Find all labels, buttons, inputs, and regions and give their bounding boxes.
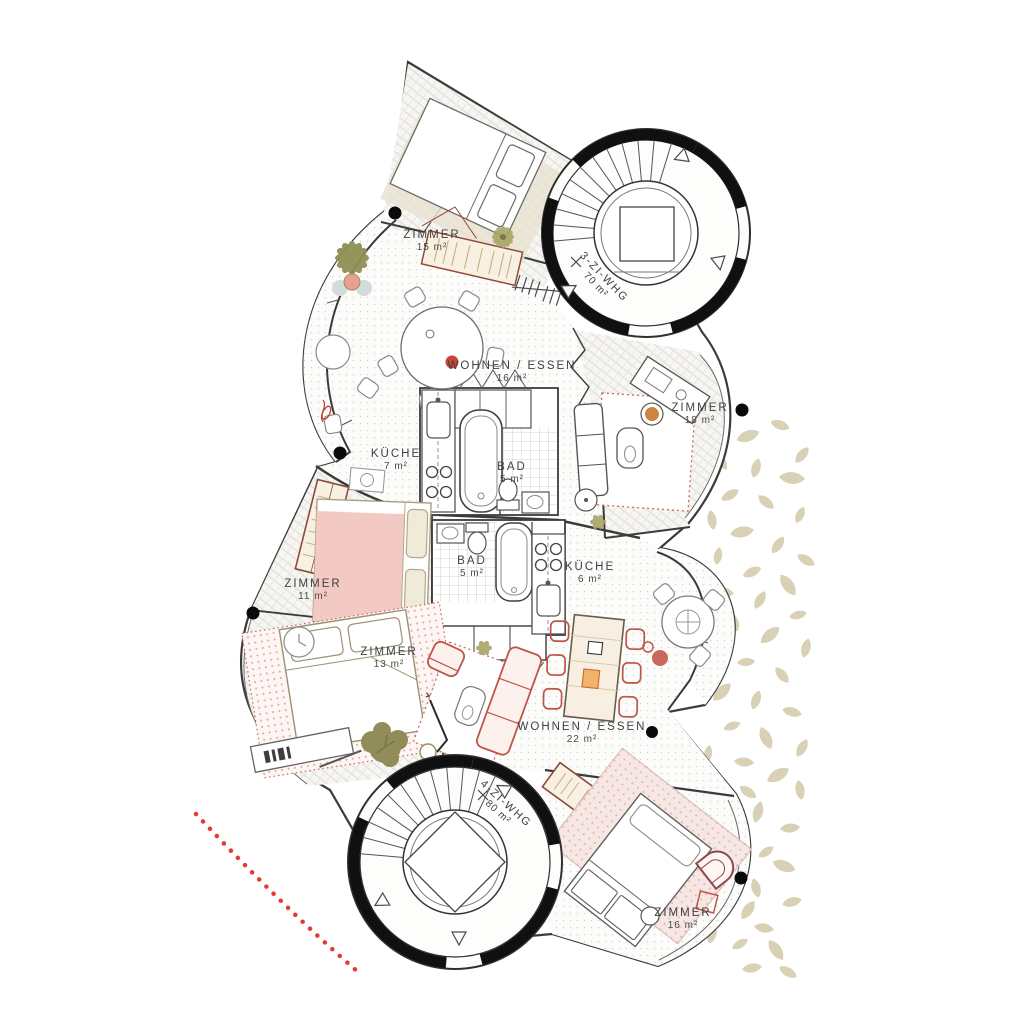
side-table xyxy=(349,468,385,493)
balcony-table xyxy=(316,335,350,369)
stool xyxy=(641,907,659,925)
floor-plan: ZIMMER15 m² WOHNEN / ESSEN16 m² ZIMMER18… xyxy=(0,0,1024,1024)
kitchen-sink xyxy=(537,585,560,616)
double-bed xyxy=(313,499,431,625)
elevator-shaft xyxy=(620,207,674,261)
round-dining-table xyxy=(401,307,483,389)
stair-tower-top xyxy=(542,129,750,337)
floor-plan-canvas xyxy=(0,0,1024,1024)
coffee-table xyxy=(617,428,643,468)
bathtub xyxy=(496,523,532,601)
kitchen-sink xyxy=(427,402,450,438)
kitchen-6-furniture xyxy=(532,534,565,634)
sofa xyxy=(574,403,608,497)
toilet xyxy=(497,479,519,510)
red-dotted-path xyxy=(196,814,358,972)
toilet xyxy=(466,523,488,554)
